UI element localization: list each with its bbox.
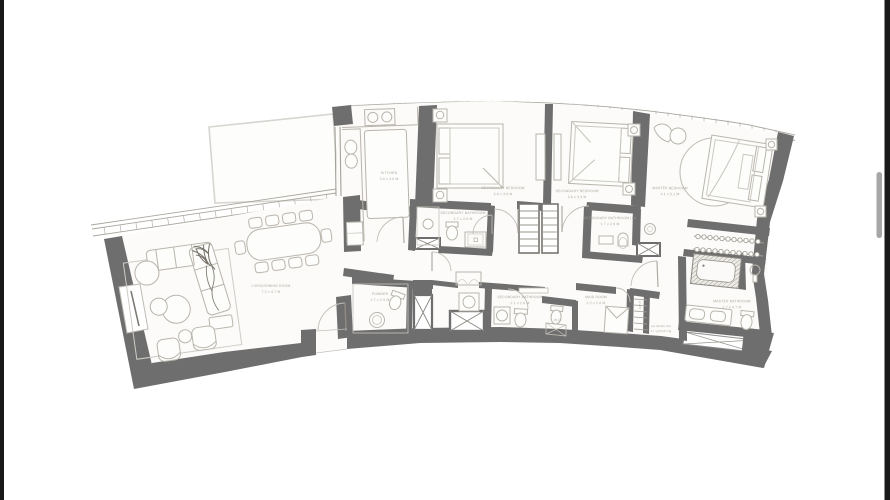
svg-text:W.C.: W.C. — [554, 318, 562, 322]
svg-text:SECONDARY BATHROOM: SECONDARY BATHROOM — [440, 211, 485, 215]
svg-text:LIVING/DINING ROOM: LIVING/DINING ROOM — [251, 284, 290, 288]
svg-text:AT 120x60 CM: AT 120x60 CM — [651, 329, 672, 333]
svg-text:1.7 x 1.5 M: 1.7 x 1.5 M — [371, 298, 390, 302]
svg-text:SECONDARY BATHROOM: SECONDARY BATHROOM — [497, 295, 542, 299]
svg-text:MAID ROOM: MAID ROOM — [585, 295, 607, 299]
svg-text:POWDER: POWDER — [372, 292, 389, 296]
svg-text:KITCHEN: KITCHEN — [381, 171, 398, 175]
svg-text:1.7 x 2.6 M: 1.7 x 2.6 M — [601, 222, 620, 226]
svg-text:1.7 x 2.6 M: 1.7 x 2.6 M — [454, 217, 473, 221]
svg-text:2.7 x 4.7 M: 2.7 x 4.7 M — [723, 305, 742, 309]
svg-text:LINEN: LINEN — [638, 301, 642, 310]
svg-text:MASTER BATHROOM: MASTER BATHROOM — [713, 299, 750, 303]
svg-text:4.1 x 5.1 M: 4.1 x 5.1 M — [661, 192, 680, 196]
svg-text:2.1 x 2.6 M: 2.1 x 2.6 M — [511, 301, 530, 305]
svg-text:AD 80x80 CM: AD 80x80 CM — [651, 324, 671, 328]
svg-text:SECONDARY BEDROOM: SECONDARY BEDROOM — [481, 186, 524, 190]
svg-text:2.2 x 2.6 M: 2.2 x 2.6 M — [587, 301, 606, 305]
svg-text:3.6 x 3.3 M: 3.6 x 3.3 M — [568, 195, 587, 199]
svg-text:SECONDARY BATHROOM (M): SECONDARY BATHROOM (M) — [584, 216, 636, 220]
svg-text:MASTER BEDROOM: MASTER BEDROOM — [652, 186, 687, 190]
svg-text:SECONDARY BEDROOM: SECONDARY BEDROOM — [555, 189, 598, 193]
svg-text:3.0 x 4.6 M: 3.0 x 4.6 M — [380, 177, 399, 181]
svg-text:7.2 x 4.7 M: 7.2 x 4.7 M — [262, 290, 281, 294]
svg-text:3.4 x 3.9 M: 3.4 x 3.9 M — [494, 192, 513, 196]
